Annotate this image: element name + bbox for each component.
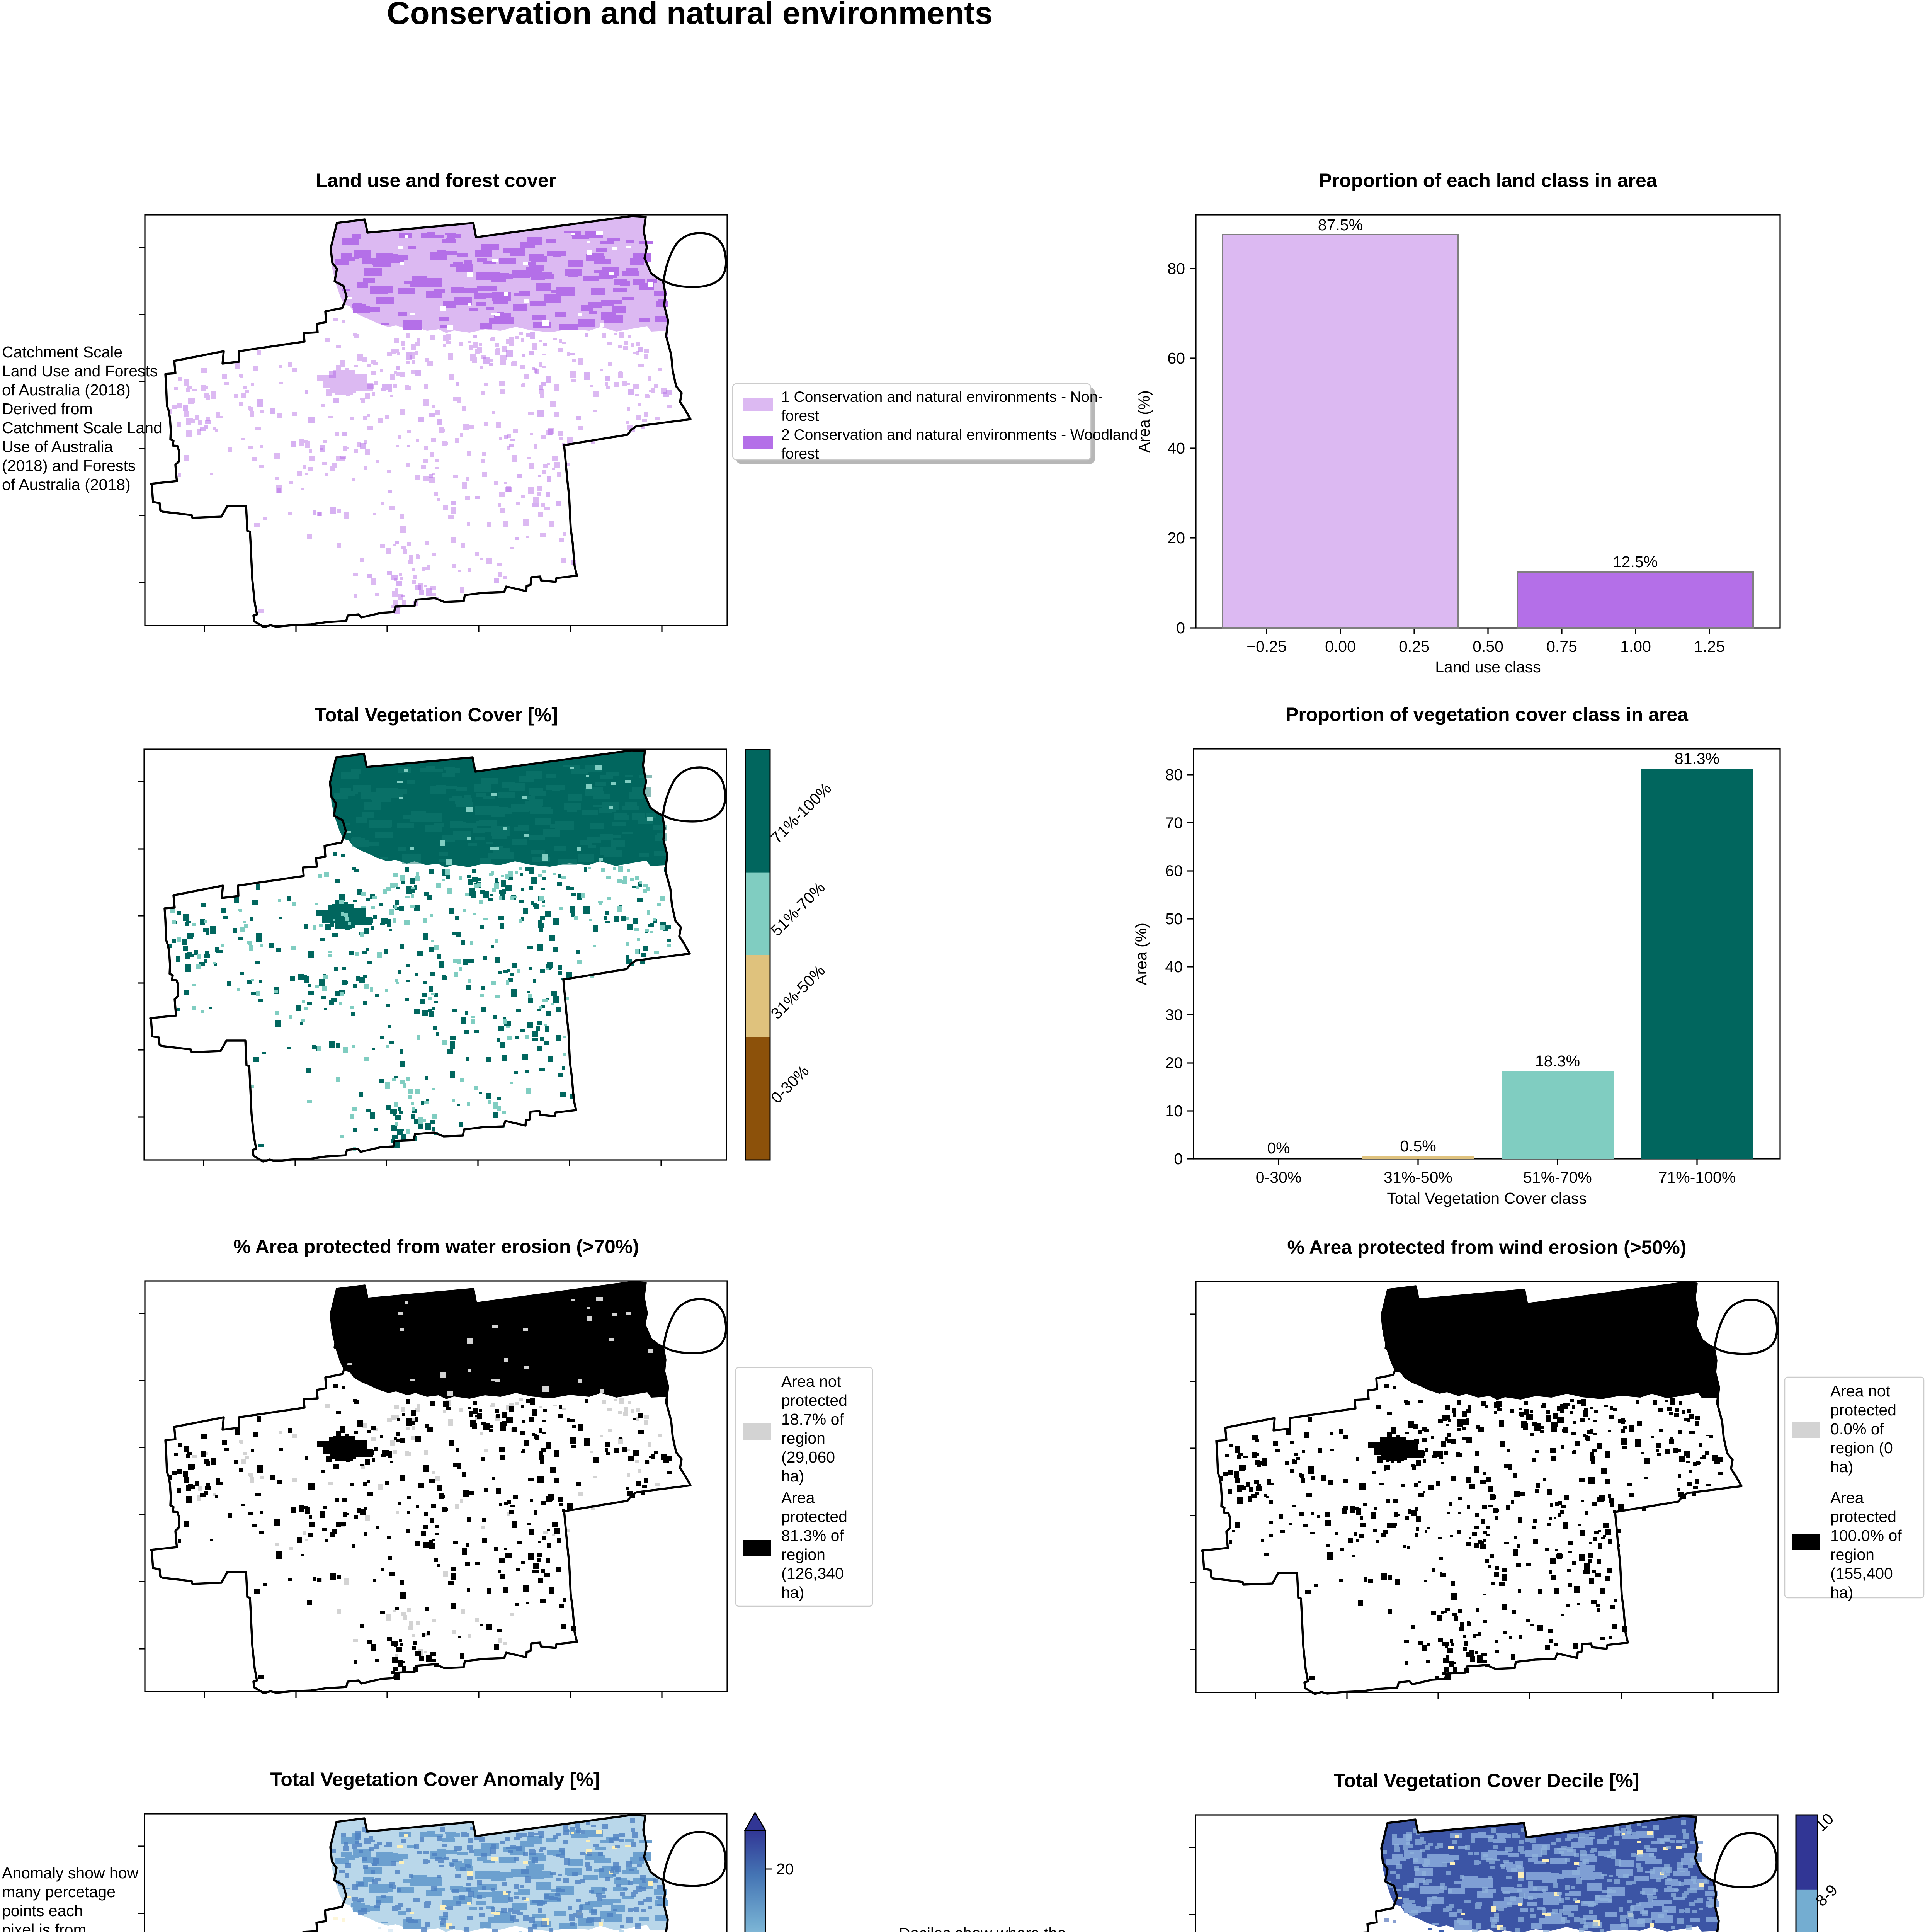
svg-text:forest: forest xyxy=(781,408,819,424)
svg-text:Total Vegetation Cover Decile: Total Vegetation Cover Decile [%] xyxy=(1334,1770,1639,1791)
svg-text:51%-70%: 51%-70% xyxy=(1523,1168,1592,1186)
svg-text:(29,060: (29,060 xyxy=(781,1448,835,1466)
svg-text:20: 20 xyxy=(1165,1054,1183,1072)
svg-text:87.5%: 87.5% xyxy=(1318,216,1363,234)
svg-text:Deciles show where the: Deciles show where the xyxy=(899,1924,1066,1932)
svg-text:18.7% of: 18.7% of xyxy=(781,1410,844,1428)
svg-text:0.0% of: 0.0% of xyxy=(1830,1420,1884,1438)
svg-text:50: 50 xyxy=(1165,910,1183,928)
svg-text:60: 60 xyxy=(1165,862,1183,880)
svg-text:40: 40 xyxy=(1167,439,1185,457)
svg-text:20: 20 xyxy=(1167,529,1185,547)
svg-text:0: 0 xyxy=(1176,619,1185,637)
svg-text:of Australia (2018): of Australia (2018) xyxy=(2,476,131,493)
svg-text:Land use class: Land use class xyxy=(1435,658,1541,676)
svg-text:100.0% of: 100.0% of xyxy=(1830,1527,1902,1544)
svg-text:Area (%): Area (%) xyxy=(1132,923,1150,985)
svg-text:1.25: 1.25 xyxy=(1694,638,1725,655)
svg-text:Proportion of vegetation cover: Proportion of vegetation cover class in … xyxy=(1286,704,1689,725)
svg-text:ha): ha) xyxy=(781,1583,804,1601)
svg-text:20: 20 xyxy=(776,1860,794,1878)
svg-text:ha): ha) xyxy=(1830,1458,1853,1476)
svg-text:protected: protected xyxy=(781,1391,847,1409)
svg-text:Area not: Area not xyxy=(781,1372,842,1390)
svg-text:Area not: Area not xyxy=(1830,1382,1891,1400)
svg-text:1 Conservation and natural env: 1 Conservation and natural environments … xyxy=(781,389,1103,405)
svg-text:(126,340: (126,340 xyxy=(781,1565,844,1582)
svg-text:0.50: 0.50 xyxy=(1473,638,1503,655)
svg-text:Catchment Scale: Catchment Scale xyxy=(2,343,122,361)
svg-text:−0.25: −0.25 xyxy=(1246,638,1287,655)
svg-text:region: region xyxy=(781,1546,825,1563)
svg-text:0.00: 0.00 xyxy=(1325,638,1356,655)
svg-text:71%-100%: 71%-100% xyxy=(1658,1168,1736,1186)
svg-text:Total Vegetation Cover [%]: Total Vegetation Cover [%] xyxy=(315,704,558,726)
svg-text:Area: Area xyxy=(1830,1489,1864,1507)
svg-text:18.3%: 18.3% xyxy=(1535,1052,1580,1070)
svg-text:30: 30 xyxy=(1165,1006,1183,1024)
svg-text:Total Vegetation Cover class: Total Vegetation Cover class xyxy=(1387,1189,1587,1207)
svg-text:0-30%: 0-30% xyxy=(1256,1168,1302,1186)
svg-text:12.5%: 12.5% xyxy=(1613,553,1658,571)
svg-text:region: region xyxy=(1830,1546,1874,1563)
svg-text:many percetage: many percetage xyxy=(2,1883,116,1901)
svg-text:(2018) and Forests: (2018) and Forests xyxy=(2,457,136,474)
svg-text:2 Conservation and natural env: 2 Conservation and natural environments … xyxy=(781,427,1138,443)
svg-text:Area: Area xyxy=(781,1489,815,1507)
svg-text:60: 60 xyxy=(1167,349,1185,367)
svg-text:of Australia (2018): of Australia (2018) xyxy=(2,381,131,399)
svg-text:0.5%: 0.5% xyxy=(1400,1137,1436,1155)
svg-text:Derived from: Derived from xyxy=(2,400,93,418)
svg-text:70: 70 xyxy=(1165,814,1183,832)
svg-text:1.00: 1.00 xyxy=(1620,638,1651,655)
svg-text:80: 80 xyxy=(1165,766,1183,784)
svg-text:10: 10 xyxy=(1165,1102,1183,1120)
svg-text:Land Use and Forests: Land Use and Forests xyxy=(2,362,158,380)
svg-text:protected: protected xyxy=(1830,1508,1896,1526)
svg-text:forest: forest xyxy=(781,446,819,462)
svg-text:Total Vegetation Cover Anomaly: Total Vegetation Cover Anomaly [%] xyxy=(270,1769,600,1790)
svg-text:81.3%: 81.3% xyxy=(1675,750,1719,767)
svg-text:Conservation and natural envir: Conservation and natural environments xyxy=(387,0,993,31)
svg-text:% Area protected from wind ero: % Area protected from wind erosion (>50%… xyxy=(1287,1236,1686,1258)
svg-text:ha): ha) xyxy=(781,1467,804,1485)
svg-text:Catchment Scale Land: Catchment Scale Land xyxy=(2,419,162,437)
svg-text:Anomaly show how: Anomaly show how xyxy=(2,1864,139,1882)
svg-text:Area (%): Area (%) xyxy=(1135,390,1153,453)
svg-text:Use of Australia: Use of Australia xyxy=(2,438,113,456)
svg-text:0: 0 xyxy=(1174,1150,1183,1168)
svg-text:protected: protected xyxy=(781,1508,847,1526)
svg-text:pixel is from: pixel is from xyxy=(2,1921,87,1932)
svg-text:region: region xyxy=(781,1429,825,1447)
svg-text:40: 40 xyxy=(1165,958,1183,976)
svg-text:points each: points each xyxy=(2,1902,83,1920)
svg-text:0.75: 0.75 xyxy=(1546,638,1577,655)
svg-text:(155,400: (155,400 xyxy=(1830,1565,1893,1582)
svg-text:% Area protected from water er: % Area protected from water erosion (>70… xyxy=(233,1236,639,1257)
svg-text:Proportion of each land class: Proportion of each land class in area xyxy=(1319,170,1657,191)
svg-text:81.3% of: 81.3% of xyxy=(781,1527,844,1544)
svg-text:31%-50%: 31%-50% xyxy=(1384,1168,1452,1186)
svg-text:ha): ha) xyxy=(1830,1583,1853,1601)
svg-text:region (0: region (0 xyxy=(1830,1439,1893,1457)
svg-text:Land use and forest cover: Land use and forest cover xyxy=(316,170,556,191)
svg-text:protected: protected xyxy=(1830,1401,1896,1419)
svg-text:0.25: 0.25 xyxy=(1399,638,1430,655)
svg-text:0%: 0% xyxy=(1267,1139,1290,1157)
svg-text:80: 80 xyxy=(1167,260,1185,277)
